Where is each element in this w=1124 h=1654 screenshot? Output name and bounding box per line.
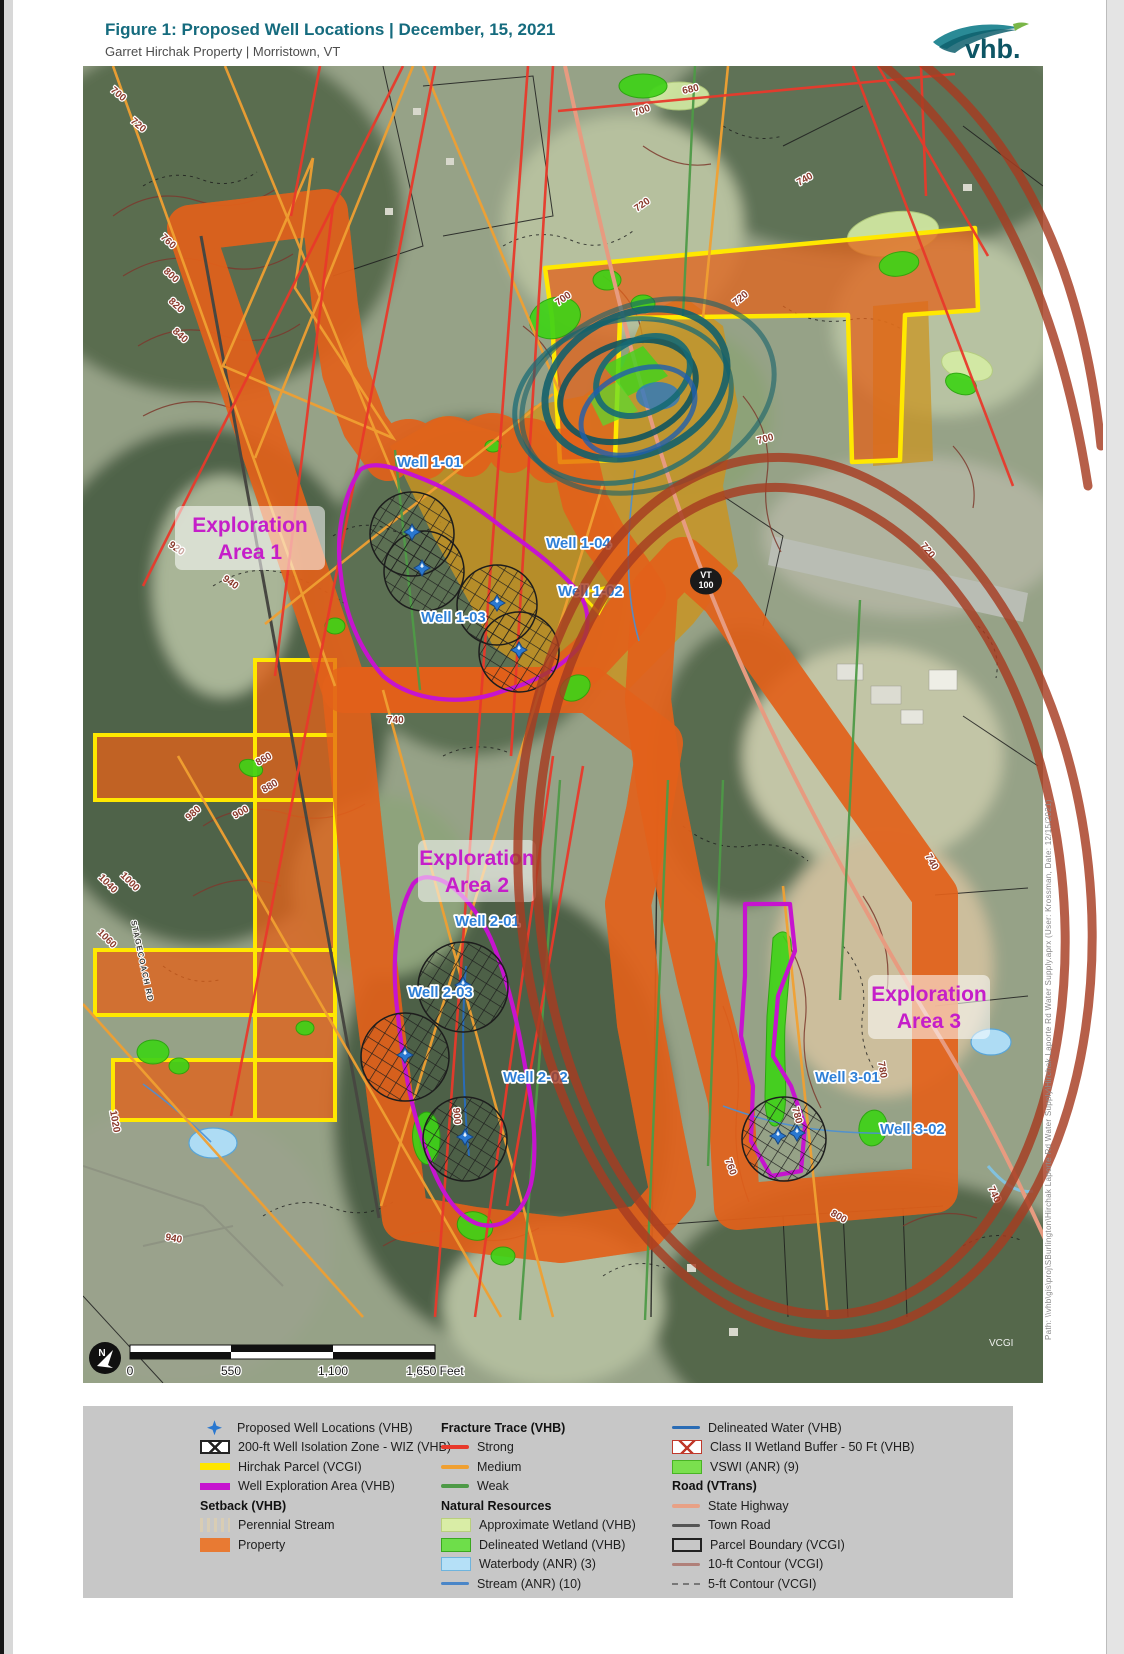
- fracture-strong-swatch: [441, 1445, 469, 1449]
- legend-column-2: Fracture Trace (VHB) Strong Medium Weak …: [441, 1418, 636, 1594]
- legend-item: Proposed Well Locations (VHB): [200, 1418, 451, 1438]
- page-title: Figure 1: Proposed Well Locations | Dece…: [105, 20, 555, 40]
- area-label-line: Area 2: [445, 874, 509, 897]
- proposed-well-icon: [207, 1420, 222, 1435]
- legend-item: Parcel Boundary (VCGI): [672, 1535, 914, 1555]
- legend-section-header: Fracture Trace (VHB): [441, 1418, 636, 1438]
- legend-item-label: State Highway: [708, 1499, 789, 1513]
- legend-item: Strong: [441, 1438, 636, 1458]
- legend-item-label: 200-ft Well Isolation Zone - WIZ (VHB): [238, 1440, 451, 1454]
- logo-leaf: [1013, 23, 1029, 32]
- well-exploration-area-swatch: [200, 1483, 230, 1490]
- stream-swatch: [441, 1582, 469, 1585]
- page-right-margin: [1106, 0, 1124, 1654]
- area-label-line: Exploration: [871, 983, 987, 1006]
- area-label-line: Area 3: [897, 1010, 961, 1033]
- map-legend: Proposed Well Locations (VHB) 200-ft Wel…: [83, 1406, 1013, 1598]
- scale-tick: 1,100: [318, 1364, 348, 1378]
- fracture-medium-swatch: [441, 1465, 469, 1469]
- town-road-swatch: [672, 1524, 700, 1527]
- legend-item-label: VSWI (ANR) (9): [710, 1460, 799, 1474]
- well-label: Well 1-02: [558, 583, 623, 600]
- route-shield-state: VT: [700, 570, 712, 580]
- well-label: Well 3-02: [880, 1121, 945, 1138]
- legend-item-label: Perennial Stream: [238, 1518, 335, 1532]
- legend-section-header: Setback (VHB): [200, 1496, 451, 1516]
- legend-item-label: Town Road: [708, 1518, 771, 1532]
- legend-item-label: Delineated Wetland (VHB): [479, 1538, 625, 1552]
- area-label-line: Area 1: [218, 541, 283, 564]
- legend-item: Hirchak Parcel (VCGI): [200, 1457, 451, 1477]
- file-path-note: Path: \\vhb\gis\proj\SBurlington\Hirchak…: [1044, 614, 1058, 1340]
- legend-item: Approximate Wetland (VHB): [441, 1516, 636, 1536]
- state-highway-swatch: [672, 1504, 700, 1508]
- legend-item-label: Medium: [477, 1460, 521, 1474]
- route-shield: VT 100: [690, 568, 722, 595]
- legend-item-label: Strong: [477, 1440, 514, 1454]
- legend-item-label: Stream (ANR) (10): [477, 1577, 581, 1591]
- well-label: Well 3-01: [815, 1069, 880, 1086]
- contour-10ft-swatch: [672, 1563, 700, 1566]
- legend-item: Class II Wetland Buffer - 50 Ft (VHB): [672, 1438, 914, 1458]
- legend-item: Perennial Stream: [200, 1516, 451, 1536]
- fracture-weak-swatch: [441, 1484, 469, 1488]
- well-label: Well 2-03: [408, 984, 473, 1001]
- logo-text: vhb.: [965, 34, 1021, 64]
- legend-item-label: Weak: [477, 1479, 509, 1493]
- legend-column-1: Proposed Well Locations (VHB) 200-ft Wel…: [200, 1418, 451, 1555]
- delineated-wetland-swatch: [441, 1538, 471, 1552]
- legend-item: VSWI (ANR) (9): [672, 1457, 914, 1477]
- well-label: Well 1-03: [421, 609, 486, 626]
- map-attribution: VCGI: [989, 1338, 1013, 1349]
- legend-item: Stream (ANR) (10): [441, 1574, 636, 1594]
- legend-item-label: Waterbody (ANR) (3): [479, 1557, 596, 1571]
- north-arrow-label: N: [98, 1348, 105, 1359]
- legend-item: Town Road: [672, 1516, 914, 1536]
- page-subtitle: Garret Hirchak Property | Morristown, VT: [105, 44, 340, 59]
- legend-item: Waterbody (ANR) (3): [441, 1555, 636, 1575]
- scale-tick: 1,650 Feet: [406, 1364, 464, 1378]
- vhb-logo: vhb.: [925, 16, 1043, 64]
- legend-item-label: Proposed Well Locations (VHB): [237, 1421, 413, 1435]
- contour-label: 900: [450, 1107, 462, 1125]
- approximate-wetland-swatch: [441, 1518, 471, 1532]
- legend-item-label: Parcel Boundary (VCGI): [710, 1538, 845, 1552]
- legend-item: Well Exploration Area (VHB): [200, 1477, 451, 1497]
- map-figure: 700 720 680 700 720 700 720 700 740 720 …: [83, 66, 1043, 1383]
- parcel-boundary-swatch: [672, 1538, 702, 1552]
- perennial-stream-swatch: [200, 1518, 230, 1532]
- vswi-swatch: [672, 1460, 702, 1474]
- legend-section-header: Road (VTrans): [672, 1477, 914, 1497]
- north-arrow: N: [89, 1342, 121, 1374]
- legend-item-label: Class II Wetland Buffer - 50 Ft (VHB): [710, 1440, 914, 1454]
- waterbody-swatch: [441, 1557, 471, 1571]
- route-shield-number: 100: [698, 580, 713, 590]
- figure-page: Figure 1: Proposed Well Locations | Dece…: [0, 0, 1124, 1654]
- well-label: Well 2-02: [503, 1069, 568, 1086]
- hirchak-parcel-swatch: [200, 1463, 230, 1470]
- legend-item: 200-ft Well Isolation Zone - WIZ (VHB): [200, 1438, 451, 1458]
- legend-item: Property: [200, 1535, 451, 1555]
- legend-item-label: 10-ft Contour (VCGI): [708, 1557, 823, 1571]
- contour-5ft-swatch: [672, 1583, 700, 1585]
- legend-item-label: Delineated Water (VHB): [708, 1421, 842, 1435]
- scale-tick: 0: [127, 1364, 134, 1378]
- legend-item: Delineated Wetland (VHB): [441, 1535, 636, 1555]
- legend-item: 10-ft Contour (VCGI): [672, 1555, 914, 1575]
- legend-item: 5-ft Contour (VCGI): [672, 1574, 914, 1594]
- legend-item-label: Well Exploration Area (VHB): [238, 1479, 395, 1493]
- well-isolation-zone-swatch: [200, 1440, 230, 1454]
- legend-item-label: Hirchak Parcel (VCGI): [238, 1460, 362, 1474]
- legend-section-header: Natural Resources: [441, 1496, 636, 1516]
- well-label: Well 1-04: [546, 535, 611, 552]
- property-setback-swatch: [200, 1538, 230, 1552]
- contour-label: 740: [387, 715, 404, 726]
- page-left-margin: [4, 0, 13, 1654]
- legend-item: State Highway: [672, 1496, 914, 1516]
- legend-item-label: Approximate Wetland (VHB): [479, 1518, 636, 1532]
- legend-item-label: Property: [238, 1538, 285, 1552]
- wetland-buffer-swatch: [672, 1440, 702, 1454]
- legend-item: Delineated Water (VHB): [672, 1418, 914, 1438]
- legend-item-label: 5-ft Contour (VCGI): [708, 1577, 816, 1591]
- area-label-line: Exploration: [192, 514, 308, 537]
- legend-column-3: Delineated Water (VHB) Class II Wetland …: [672, 1418, 914, 1594]
- legend-item: Medium: [441, 1457, 636, 1477]
- legend-item: Weak: [441, 1477, 636, 1497]
- well-label: Well 1-01: [397, 454, 462, 471]
- area-label-line: Exploration: [419, 847, 535, 870]
- well-label: Well 2-01: [455, 913, 520, 930]
- scale-tick: 550: [221, 1364, 241, 1378]
- delineated-water-swatch: [672, 1426, 700, 1429]
